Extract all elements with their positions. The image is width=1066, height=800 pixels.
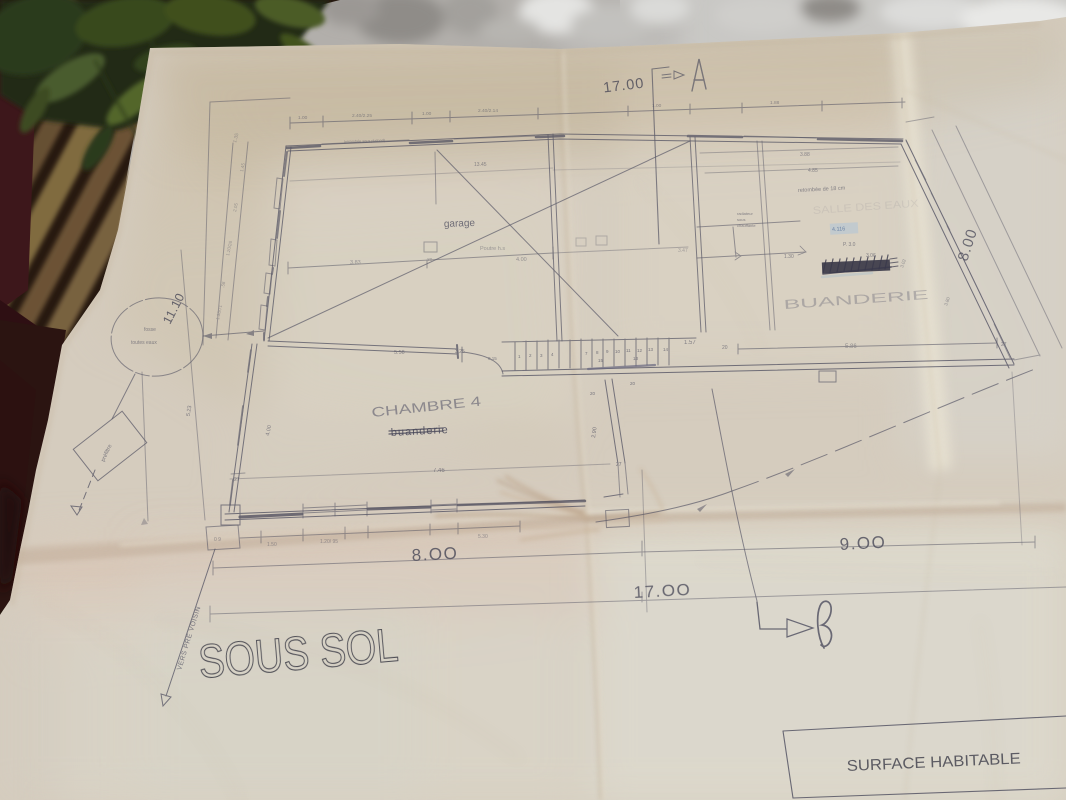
svg-text:fosse: fosse xyxy=(144,327,156,333)
svg-text:5.58: 5.58 xyxy=(394,350,405,356)
svg-text:toutes eaux: toutes eaux xyxy=(131,340,157,346)
svg-text:4.116: 4.116 xyxy=(832,226,846,233)
svg-text:13: 13 xyxy=(648,347,654,352)
svg-text:8.OO: 8.OO xyxy=(411,544,459,565)
svg-text:3.47: 3.47 xyxy=(678,248,688,254)
svg-text:2.40/2.25: 2.40/2.25 xyxy=(352,113,372,119)
svg-text:27: 27 xyxy=(1001,342,1007,348)
svg-text:2.40/2.14: 2.40/2.14 xyxy=(478,108,498,114)
svg-text:chauffante: chauffante xyxy=(737,223,756,228)
svg-text:.80: .80 xyxy=(426,257,433,262)
svg-text:13.45: 13.45 xyxy=(474,162,487,168)
svg-text:1.57: 1.57 xyxy=(684,340,696,346)
svg-text:10: 10 xyxy=(615,349,621,354)
svg-text:1.88: 1.88 xyxy=(770,100,780,106)
svg-text:5.86: 5.86 xyxy=(845,344,857,350)
svg-text:1.50: 1.50 xyxy=(267,542,277,548)
svg-text:17.OO: 17.OO xyxy=(633,580,692,602)
svg-text:27: 27 xyxy=(234,477,240,483)
svg-text:1.00: 1.00 xyxy=(298,115,308,121)
svg-text:13: 13 xyxy=(633,356,639,361)
svg-text:1.00: 1.00 xyxy=(422,111,432,117)
svg-text:3.88: 3.88 xyxy=(800,152,810,158)
svg-text:20: 20 xyxy=(722,345,728,351)
svg-text:12: 12 xyxy=(637,348,643,353)
svg-text:1.30: 1.30 xyxy=(784,254,794,260)
svg-text:Poutre h.s: Poutre h.s xyxy=(480,246,505,252)
svg-text:4.85: 4.85 xyxy=(808,168,818,174)
svg-text:0 9: 0 9 xyxy=(214,537,221,543)
svg-text:9.OO: 9.OO xyxy=(839,533,887,554)
svg-text:1.20/ 95: 1.20/ 95 xyxy=(320,539,338,545)
svg-text:11: 11 xyxy=(626,348,631,353)
svg-text:20: 20 xyxy=(630,381,636,386)
svg-text:5.30: 5.30 xyxy=(478,534,488,540)
svg-text:sous: sous xyxy=(737,217,745,222)
svg-text:15: 15 xyxy=(598,358,604,363)
svg-text:3.83: 3.83 xyxy=(350,260,361,266)
svg-text:4.00: 4.00 xyxy=(516,257,527,263)
svg-text:P. 3.0: P. 3.0 xyxy=(843,242,856,248)
svg-text:20: 20 xyxy=(590,391,596,396)
svg-text:garage: garage xyxy=(444,218,476,230)
svg-text:27: 27 xyxy=(616,462,622,468)
svg-text:radiateur: radiateur xyxy=(737,211,753,216)
svg-text:14: 14 xyxy=(663,347,669,352)
